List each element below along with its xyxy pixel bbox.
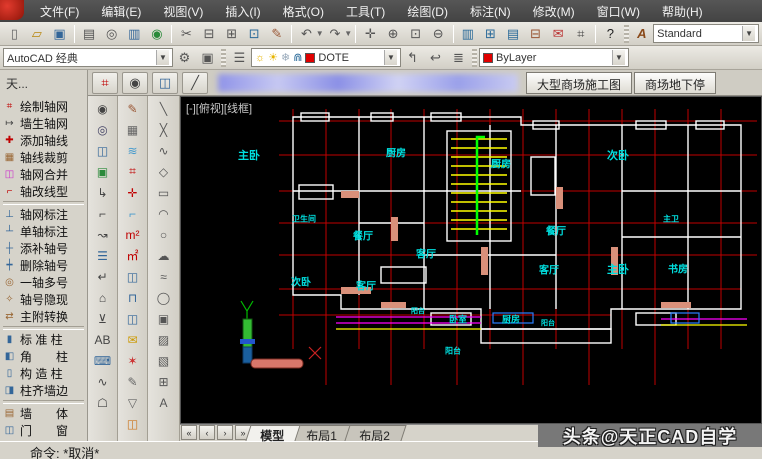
palette-item-1[interactable]: ↦墙生轴网 bbox=[0, 115, 87, 132]
zoom-doc-icon[interactable]: ◎ bbox=[91, 119, 115, 140]
ellipse-icon[interactable]: ◯ bbox=[152, 287, 176, 308]
text-style-combo-value: Standard bbox=[657, 28, 702, 40]
level-mark-icon[interactable]: ⊻ bbox=[91, 308, 115, 329]
palette-item-label: 墙 体 bbox=[20, 405, 68, 422]
room-label-6: 客厅 bbox=[416, 246, 436, 261]
palette-item-label: 添补轴号 bbox=[20, 240, 68, 257]
layout-nav-icon-1[interactable]: ‹ bbox=[199, 425, 215, 440]
menu-item-5[interactable]: 工具(T) bbox=[336, 1, 395, 22]
censored-title-band bbox=[218, 74, 518, 92]
toolbar-separator bbox=[453, 25, 454, 43]
room-label-0: 主卧 bbox=[238, 147, 260, 163]
tool-palettes-icon[interactable]: ▤ bbox=[503, 24, 524, 44]
match-properties-icon[interactable]: ✎ bbox=[267, 24, 288, 44]
mini-toolbar: ⌗◉◫╱ bbox=[88, 72, 212, 94]
palette-item-12[interactable]: ⇄主附转换 bbox=[0, 308, 87, 325]
palette-item-label: 删除轴号 bbox=[20, 257, 68, 274]
camera-icon[interactable]: ◉ bbox=[122, 72, 148, 94]
book-icon[interactable]: ▽ bbox=[121, 392, 145, 413]
menu-item-1[interactable]: 编辑(E) bbox=[91, 1, 151, 22]
room-label-4: 卫生间 bbox=[292, 214, 316, 225]
zoom-window-icon[interactable]: ⊡ bbox=[405, 24, 426, 44]
zoom-previous-icon[interactable]: ⊖ bbox=[428, 24, 449, 44]
color-combo[interactable]: ByLayer ▼ bbox=[479, 48, 629, 67]
dim-style-icon[interactable]: ⌐ bbox=[91, 203, 115, 224]
open-file-icon[interactable]: ▱ bbox=[27, 24, 48, 44]
area-m2-icon[interactable]: m² bbox=[121, 224, 145, 245]
gradient-icon[interactable]: ▧ bbox=[152, 350, 176, 371]
palette-item-label: 单轴标注 bbox=[20, 223, 68, 240]
layer-color-swatch bbox=[305, 53, 315, 63]
keyboard-icon[interactable]: ⌨ bbox=[91, 350, 115, 371]
room-label-1: 厨房 bbox=[386, 145, 406, 160]
autocad-window: 文件(F)编辑(E)视图(V)插入(I)格式(O)工具(T)绘图(D)标注(N)… bbox=[0, 0, 762, 459]
viewport-icon[interactable]: ▣ bbox=[91, 161, 115, 182]
palette-item-17[interactable]: ▤墙 体 bbox=[0, 405, 87, 422]
palette-item-icon: ▦ bbox=[3, 152, 16, 163]
paste-icon[interactable]: ⊞ bbox=[221, 24, 242, 44]
make-object-layer-icon[interactable]: ↰ bbox=[402, 48, 423, 68]
revcloud-icon[interactable]: ☁ bbox=[152, 245, 176, 266]
save-icon[interactable]: ▣ bbox=[49, 24, 70, 44]
door-swing-icon[interactable]: ⌂ bbox=[91, 287, 115, 308]
quickcalc-icon[interactable]: ⌗ bbox=[571, 24, 592, 44]
palette-item-8[interactable]: ┼添补轴号 bbox=[0, 240, 87, 257]
sheetset-manager-icon[interactable]: ⊟ bbox=[525, 24, 546, 44]
chevron-down-icon[interactable]: ▼ bbox=[156, 50, 169, 65]
palette-item-icon: ⇄ bbox=[3, 311, 16, 322]
door-tool-icon[interactable]: ⊓ bbox=[121, 287, 145, 308]
axis-grid-icon[interactable]: ⌗ bbox=[121, 161, 145, 182]
undo-icon[interactable]: ↶ bbox=[296, 24, 317, 44]
layers-toolbar: AutoCAD 经典 ▼ ⚙ ▣ ☰ ☼ ☀ ❄ ⋒ DOTE ▼ ↰ ↩ ≣ … bbox=[0, 46, 762, 70]
toolbar-separator bbox=[74, 25, 75, 43]
room-label-14: 卧室 bbox=[449, 313, 467, 326]
layer-states-icon[interactable]: ≣ bbox=[448, 48, 469, 68]
palette-item-icon: ▯ bbox=[3, 368, 16, 379]
current-color-swatch bbox=[483, 53, 493, 63]
standard-toolbar: ▯▱▣▤◎▥◉✂⊟⊞⊡✎↶▼↷▼✛⊕⊡⊖▥⊞▤⊟✉⌗?AStandard▼ bbox=[0, 22, 762, 46]
palette-separator bbox=[3, 400, 84, 404]
palette-item-7[interactable]: ┴单轴标注 bbox=[0, 223, 87, 240]
cut-icon[interactable]: ✂ bbox=[176, 24, 197, 44]
toolbar-grip[interactable] bbox=[624, 25, 629, 43]
menu-item-10[interactable]: 帮助(H) bbox=[652, 1, 713, 22]
room-label-2: 厨房 bbox=[491, 156, 511, 171]
area-m2-box-icon[interactable]: ㎡ bbox=[121, 245, 145, 266]
print-icon[interactable]: ▤ bbox=[79, 24, 100, 44]
toolbar-separator bbox=[171, 25, 172, 43]
markup-set-icon[interactable]: ✉ bbox=[548, 24, 569, 44]
leader-icon[interactable]: ↳ bbox=[91, 182, 115, 203]
palette-separator bbox=[3, 201, 84, 205]
chevron-down-icon[interactable]: ▼ bbox=[742, 26, 755, 41]
layer-properties-icon[interactable]: ☰ bbox=[229, 48, 250, 68]
palette-item-icon: ⊥ bbox=[3, 209, 16, 220]
palette-item-icon: ◧ bbox=[3, 351, 16, 362]
palette-item-label: 轴网标注 bbox=[20, 206, 68, 223]
toolbar-separator bbox=[291, 25, 292, 43]
redirect-icon[interactable]: ↵ bbox=[91, 266, 115, 287]
palette-item-icon: ▤ bbox=[3, 408, 16, 419]
docked-row: 天... ⌗◉◫╱ 大型商场施工图商场地下停 bbox=[0, 70, 762, 96]
palette-item-label: 一轴多号 bbox=[20, 274, 68, 291]
layout-tab-label: 模型 bbox=[260, 427, 284, 444]
toolcol-1: ◉◎◫▣↳⌐↝☰↵⌂⊻AB⌨∿☖ bbox=[88, 96, 118, 441]
palette-item-label: 标 准 柱 bbox=[20, 331, 63, 348]
toolbar-separator bbox=[355, 25, 356, 43]
palette-item-label: 门 窗 bbox=[20, 422, 68, 439]
gear-icon[interactable]: ⚙ bbox=[174, 48, 195, 68]
room-label-13: 主卫 bbox=[663, 214, 679, 225]
palette-item-label: 绘制轴网 bbox=[20, 98, 68, 115]
palette-item-5[interactable]: ⌐轴改线型 bbox=[0, 183, 87, 200]
toolcol-3: ╲╳∿◇▭◠○☁≈◯▣▨▧⊞A bbox=[148, 96, 180, 441]
mail-icon[interactable]: ✉ bbox=[121, 329, 145, 350]
palette-item-10[interactable]: ◎一轴多号 bbox=[0, 274, 87, 291]
layer-lock-icon[interactable]: ⋒ bbox=[293, 51, 302, 64]
paste-as-block-icon[interactable]: ⊡ bbox=[244, 24, 265, 44]
room-label-3: 次卧 bbox=[607, 147, 629, 163]
room-label-11: 主卧 bbox=[607, 261, 629, 277]
palette-item-9[interactable]: ┿删除轴号 bbox=[0, 257, 87, 274]
color-window-icon[interactable]: ◫ bbox=[121, 413, 145, 434]
palette-item-label: 角 柱 bbox=[20, 348, 68, 365]
palette-item-6[interactable]: ⊥轴网标注 bbox=[0, 206, 87, 223]
palette-item-icon: ◨ bbox=[3, 385, 16, 396]
wall-stamp-icon[interactable]: ▦ bbox=[121, 119, 145, 140]
tianzheng-palette: ⌗绘制轴网↦墙生轴网✚添加轴线▦轴线裁剪◫轴网合并⌐轴改线型⊥轴网标注┴单轴标注… bbox=[0, 96, 88, 441]
drawing-canvas[interactable]: [-][俯视][线框] bbox=[180, 96, 762, 424]
palette-separator bbox=[3, 326, 84, 330]
text-icon[interactable]: A bbox=[152, 392, 176, 413]
room-label-7: 餐厅 bbox=[546, 223, 566, 238]
axis-cross-icon[interactable]: ✛ bbox=[121, 182, 145, 203]
lamp-icon[interactable]: ☖ bbox=[91, 392, 115, 413]
clip-pen-icon[interactable]: ✎ bbox=[121, 98, 145, 119]
draw-line-icon[interactable]: ╱ bbox=[182, 72, 208, 94]
palette-item-label: 轴号隐现 bbox=[20, 291, 68, 308]
eplot-icon[interactable]: ▥ bbox=[124, 24, 145, 44]
layout-tab-0[interactable]: 模型 bbox=[245, 425, 300, 441]
drawing-tab-1[interactable]: 商场地下停 bbox=[634, 72, 716, 94]
workspace-combo[interactable]: AutoCAD 经典 ▼ bbox=[3, 48, 173, 67]
room-label-12: 书房 bbox=[668, 261, 688, 276]
layout-nav-icon-0[interactable]: « bbox=[181, 425, 197, 440]
palette-item-label: 柱齐墙边 bbox=[20, 382, 68, 399]
menu-item-9[interactable]: 窗口(W) bbox=[587, 1, 650, 22]
text-style-icon[interactable]: A bbox=[632, 24, 653, 44]
palette-item-icon: ↦ bbox=[3, 118, 16, 129]
current-color-name: ByLayer bbox=[496, 52, 536, 64]
ucs-icon bbox=[240, 301, 321, 368]
axis-grid-icon[interactable]: ⌗ bbox=[92, 72, 118, 94]
layer-previous-icon[interactable]: ↩ bbox=[425, 48, 446, 68]
palette-item-icon: ┴ bbox=[3, 226, 16, 237]
workspace-combo-value: AutoCAD 经典 bbox=[7, 50, 78, 66]
palette-item-2[interactable]: ✚添加轴线 bbox=[0, 132, 87, 149]
arc-icon[interactable]: ◠ bbox=[152, 203, 176, 224]
palette-item-icon: ┿ bbox=[3, 260, 16, 271]
designcenter-icon[interactable]: ⊞ bbox=[480, 24, 501, 44]
spline-icon[interactable]: ≈ bbox=[152, 266, 176, 287]
room-label-10: 客厅 bbox=[539, 262, 559, 277]
line-icon[interactable]: ╲ bbox=[152, 98, 176, 119]
palette-item-label: 墙生轴网 bbox=[20, 115, 68, 132]
camera-icon[interactable]: ◉ bbox=[91, 98, 115, 119]
menu-item-3[interactable]: 插入(I) bbox=[215, 1, 270, 22]
text-style-combo[interactable]: Standard▼ bbox=[653, 24, 759, 43]
palette-item-label: 轴网合并 bbox=[20, 166, 68, 183]
print-preview-icon[interactable]: ◎ bbox=[101, 24, 122, 44]
chevron-down-icon[interactable]: ▼ bbox=[316, 29, 324, 38]
workspace-settings-icon[interactable]: ▣ bbox=[197, 48, 218, 68]
palette-item-label: 添加轴线 bbox=[20, 132, 68, 149]
palette-item-icon: ┼ bbox=[3, 243, 16, 254]
ab-arrow-icon[interactable]: ↝ bbox=[91, 224, 115, 245]
rectangle-icon[interactable]: ▭ bbox=[152, 182, 176, 203]
hatch-icon[interactable]: ▨ bbox=[152, 329, 176, 350]
room-label-8: 次卧 bbox=[291, 274, 311, 289]
drawing-tab-0[interactable]: 大型商场施工图 bbox=[526, 72, 632, 94]
xline-icon[interactable]: ╳ bbox=[152, 119, 176, 140]
room-label-15: 厨房 bbox=[502, 313, 520, 326]
ab-text-icon[interactable]: AB bbox=[91, 329, 115, 350]
palette-item-15[interactable]: ▯构 造 柱 bbox=[0, 365, 87, 382]
palette-item-label: 构 造 柱 bbox=[20, 365, 63, 382]
palette-item-icon: ⌗ bbox=[3, 101, 16, 112]
palette-item-14[interactable]: ◧角 柱 bbox=[0, 348, 87, 365]
app-logo-icon[interactable] bbox=[0, 0, 24, 20]
column-tool-icon[interactable]: ◫ bbox=[152, 72, 178, 94]
palette-item-4[interactable]: ◫轴网合并 bbox=[0, 166, 87, 183]
copy-icon[interactable]: ⊟ bbox=[199, 24, 220, 44]
menu-item-0[interactable]: 文件(F) bbox=[30, 1, 89, 22]
palette-item-icon: ▮ bbox=[3, 334, 16, 345]
seal-icon[interactable]: ✶ bbox=[121, 350, 145, 371]
menu-bar: 文件(F)编辑(E)视图(V)插入(I)格式(O)工具(T)绘图(D)标注(N)… bbox=[0, 0, 762, 22]
layer-vp-freeze-icon[interactable]: ❄ bbox=[281, 51, 290, 64]
zoom-realtime-icon[interactable]: ⊕ bbox=[383, 24, 404, 44]
polyline-icon[interactable]: ∿ bbox=[152, 140, 176, 161]
redo-icon[interactable]: ↷ bbox=[325, 24, 346, 44]
chevron-down-icon[interactable]: ▼ bbox=[612, 50, 625, 65]
palette-item-icon: ⌐ bbox=[3, 186, 16, 197]
publish-icon[interactable]: ◉ bbox=[147, 24, 168, 44]
room-label-9: 客厅 bbox=[356, 278, 376, 293]
insert-block-icon[interactable]: ▣ bbox=[152, 308, 176, 329]
layout-tab-2[interactable]: 布局2 bbox=[344, 425, 406, 441]
table-icon[interactable]: ⊞ bbox=[152, 371, 176, 392]
pen-path-icon[interactable]: ✎ bbox=[121, 371, 145, 392]
toolcol-2: ✎▦≋⌗✛⌐m²㎡◫⊓◫✉✶✎▽◫ bbox=[118, 96, 148, 441]
palette-item-icon: ◎ bbox=[3, 277, 16, 288]
new-file-icon[interactable]: ▯ bbox=[4, 24, 25, 44]
palette-item-icon: ✚ bbox=[3, 135, 16, 146]
chevron-down-icon[interactable]: ▼ bbox=[344, 29, 352, 38]
palette-item-label: 轴线裁剪 bbox=[20, 149, 68, 166]
chevron-down-icon[interactable]: ▼ bbox=[384, 50, 397, 65]
window-pair-icon[interactable]: ◫ bbox=[91, 140, 115, 161]
pan-icon[interactable]: ✛ bbox=[360, 24, 381, 44]
watermark-text: 头条@天正CAD自学 bbox=[538, 424, 762, 447]
palette-item-icon: ◫ bbox=[3, 425, 16, 436]
window2-tool-icon[interactable]: ◫ bbox=[121, 308, 145, 329]
menu-item-4[interactable]: 格式(O) bbox=[273, 1, 334, 22]
palette-item-label: 主附转换 bbox=[20, 308, 68, 325]
toolbar-separator bbox=[595, 25, 596, 43]
menu-item-2[interactable]: 视图(V) bbox=[153, 1, 213, 22]
current-layer-name: DOTE bbox=[318, 52, 349, 64]
layer-on-bulb-icon[interactable]: ☼ bbox=[255, 52, 265, 64]
menu-item-7[interactable]: 标注(N) bbox=[460, 1, 521, 22]
room-label-18: 阳台 bbox=[541, 318, 555, 328]
viewport-controls-label[interactable]: [-][俯视][线框] bbox=[186, 100, 252, 116]
step-section-icon[interactable]: ⌐ bbox=[121, 203, 145, 224]
palette-item-label: 轴改线型 bbox=[20, 183, 68, 200]
menu-item-6[interactable]: 绘图(D) bbox=[397, 1, 458, 22]
schedule-icon[interactable]: ☰ bbox=[91, 245, 115, 266]
polygon-icon[interactable]: ◇ bbox=[152, 161, 176, 182]
layers-icon[interactable]: ≋ bbox=[121, 140, 145, 161]
layer-combo[interactable]: ☼ ☀ ❄ ⋒ DOTE ▼ bbox=[251, 48, 401, 67]
drawing-tabs: 大型商场施工图商场地下停 bbox=[526, 72, 716, 94]
menu-item-8[interactable]: 修改(M) bbox=[523, 1, 585, 22]
palette-caption[interactable]: 天... bbox=[0, 70, 88, 96]
window-tool-icon[interactable]: ◫ bbox=[121, 266, 145, 287]
room-label-16: 阳台 bbox=[411, 306, 425, 316]
palette-item-18[interactable]: ◫门 窗 bbox=[0, 422, 87, 439]
wave-line-icon[interactable]: ∿ bbox=[91, 371, 115, 392]
layer-freeze-sun-icon[interactable]: ☀ bbox=[268, 51, 278, 64]
properties-icon[interactable]: ▥ bbox=[458, 24, 479, 44]
palette-item-16[interactable]: ◨柱齐墙边 bbox=[0, 382, 87, 399]
palette-item-icon: ◫ bbox=[3, 169, 16, 180]
layout-nav-icon-2[interactable]: › bbox=[217, 425, 233, 440]
room-label-17: 阳台 bbox=[445, 346, 461, 357]
help-icon[interactable]: ? bbox=[600, 24, 621, 44]
palette-item-3[interactable]: ▦轴线裁剪 bbox=[0, 149, 87, 166]
palette-item-13[interactable]: ▮标 准 柱 bbox=[0, 331, 87, 348]
palette-item-icon: ✧ bbox=[3, 294, 16, 305]
circle-icon[interactable]: ○ bbox=[152, 224, 176, 245]
room-label-5: 餐厅 bbox=[353, 228, 373, 243]
palette-item-0[interactable]: ⌗绘制轴网 bbox=[0, 98, 87, 115]
palette-item-11[interactable]: ✧轴号隐现 bbox=[0, 291, 87, 308]
